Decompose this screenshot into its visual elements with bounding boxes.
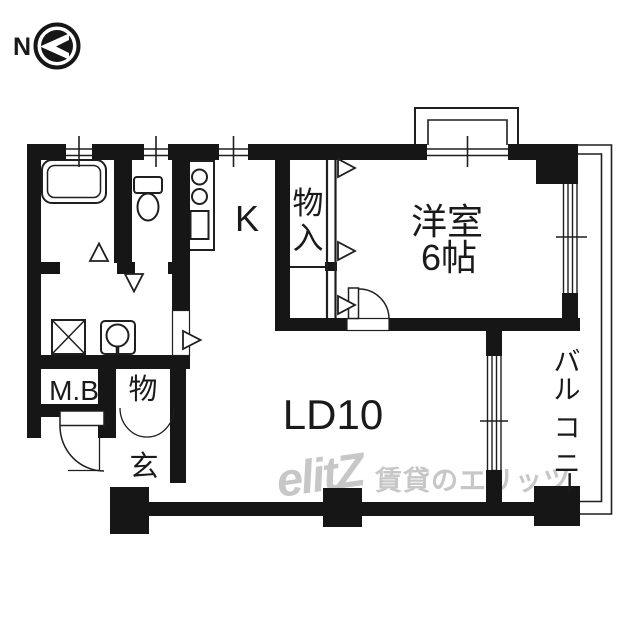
wall-left [27, 144, 41, 438]
wall-kitchen-closet [275, 144, 290, 331]
wall-ld-right [486, 331, 502, 356]
floor-plan-svg: elitZ 賃貸のエリッツ [0, 0, 640, 640]
pillar-bottom-mid [323, 488, 362, 527]
westernroom-doorway [347, 319, 389, 331]
wall-westernroom-bottom [389, 318, 580, 331]
wall-toilet-kitchen [172, 144, 190, 310]
balcony-label-char: バ [554, 347, 581, 377]
wall-westernroom-right [562, 293, 578, 318]
washbasin-bowl [107, 325, 129, 347]
balcony-label-char: コ [554, 413, 581, 443]
western-room-size: 6帖 [421, 237, 477, 278]
kitchen-label: K [235, 198, 259, 239]
wall-bath-washroom [117, 262, 135, 274]
pillar-bottom-left [110, 487, 149, 534]
wall-bottom [146, 502, 580, 516]
entrance-label: 玄 [129, 450, 158, 483]
balcony-label-char: ー [553, 471, 583, 498]
meter-box-label: M.B [49, 375, 99, 406]
wall-bath-washroom [168, 262, 190, 274]
closet-label-char: 物 [293, 186, 324, 221]
wall-ld-right [486, 470, 502, 502]
bathtub-inner [48, 166, 101, 198]
wall-westernroom-bottom [275, 318, 347, 331]
living-dining-label: LD10 [283, 391, 383, 438]
floor-plan-page: elitZ 賃貸のエリッツ [0, 0, 640, 640]
stove-burner-1 [192, 170, 207, 185]
wall-top-segment [248, 144, 427, 160]
toilet-bowl [138, 194, 159, 221]
closet-label-char: 入 [293, 221, 324, 256]
wall-bath-toilet [114, 144, 132, 263]
storage-label: 物 [128, 373, 157, 406]
wall-bath-washroom [27, 262, 60, 274]
kitchen-sink [191, 211, 209, 239]
north-label: N [13, 33, 31, 61]
western-room-name: 洋室 [411, 201, 483, 242]
stove-burner-2 [192, 189, 207, 204]
entry-door-leaf [60, 411, 104, 426]
pillar-top-right [536, 144, 578, 184]
toilet-tank [134, 177, 162, 193]
balcony-label-char: ル [554, 375, 581, 405]
